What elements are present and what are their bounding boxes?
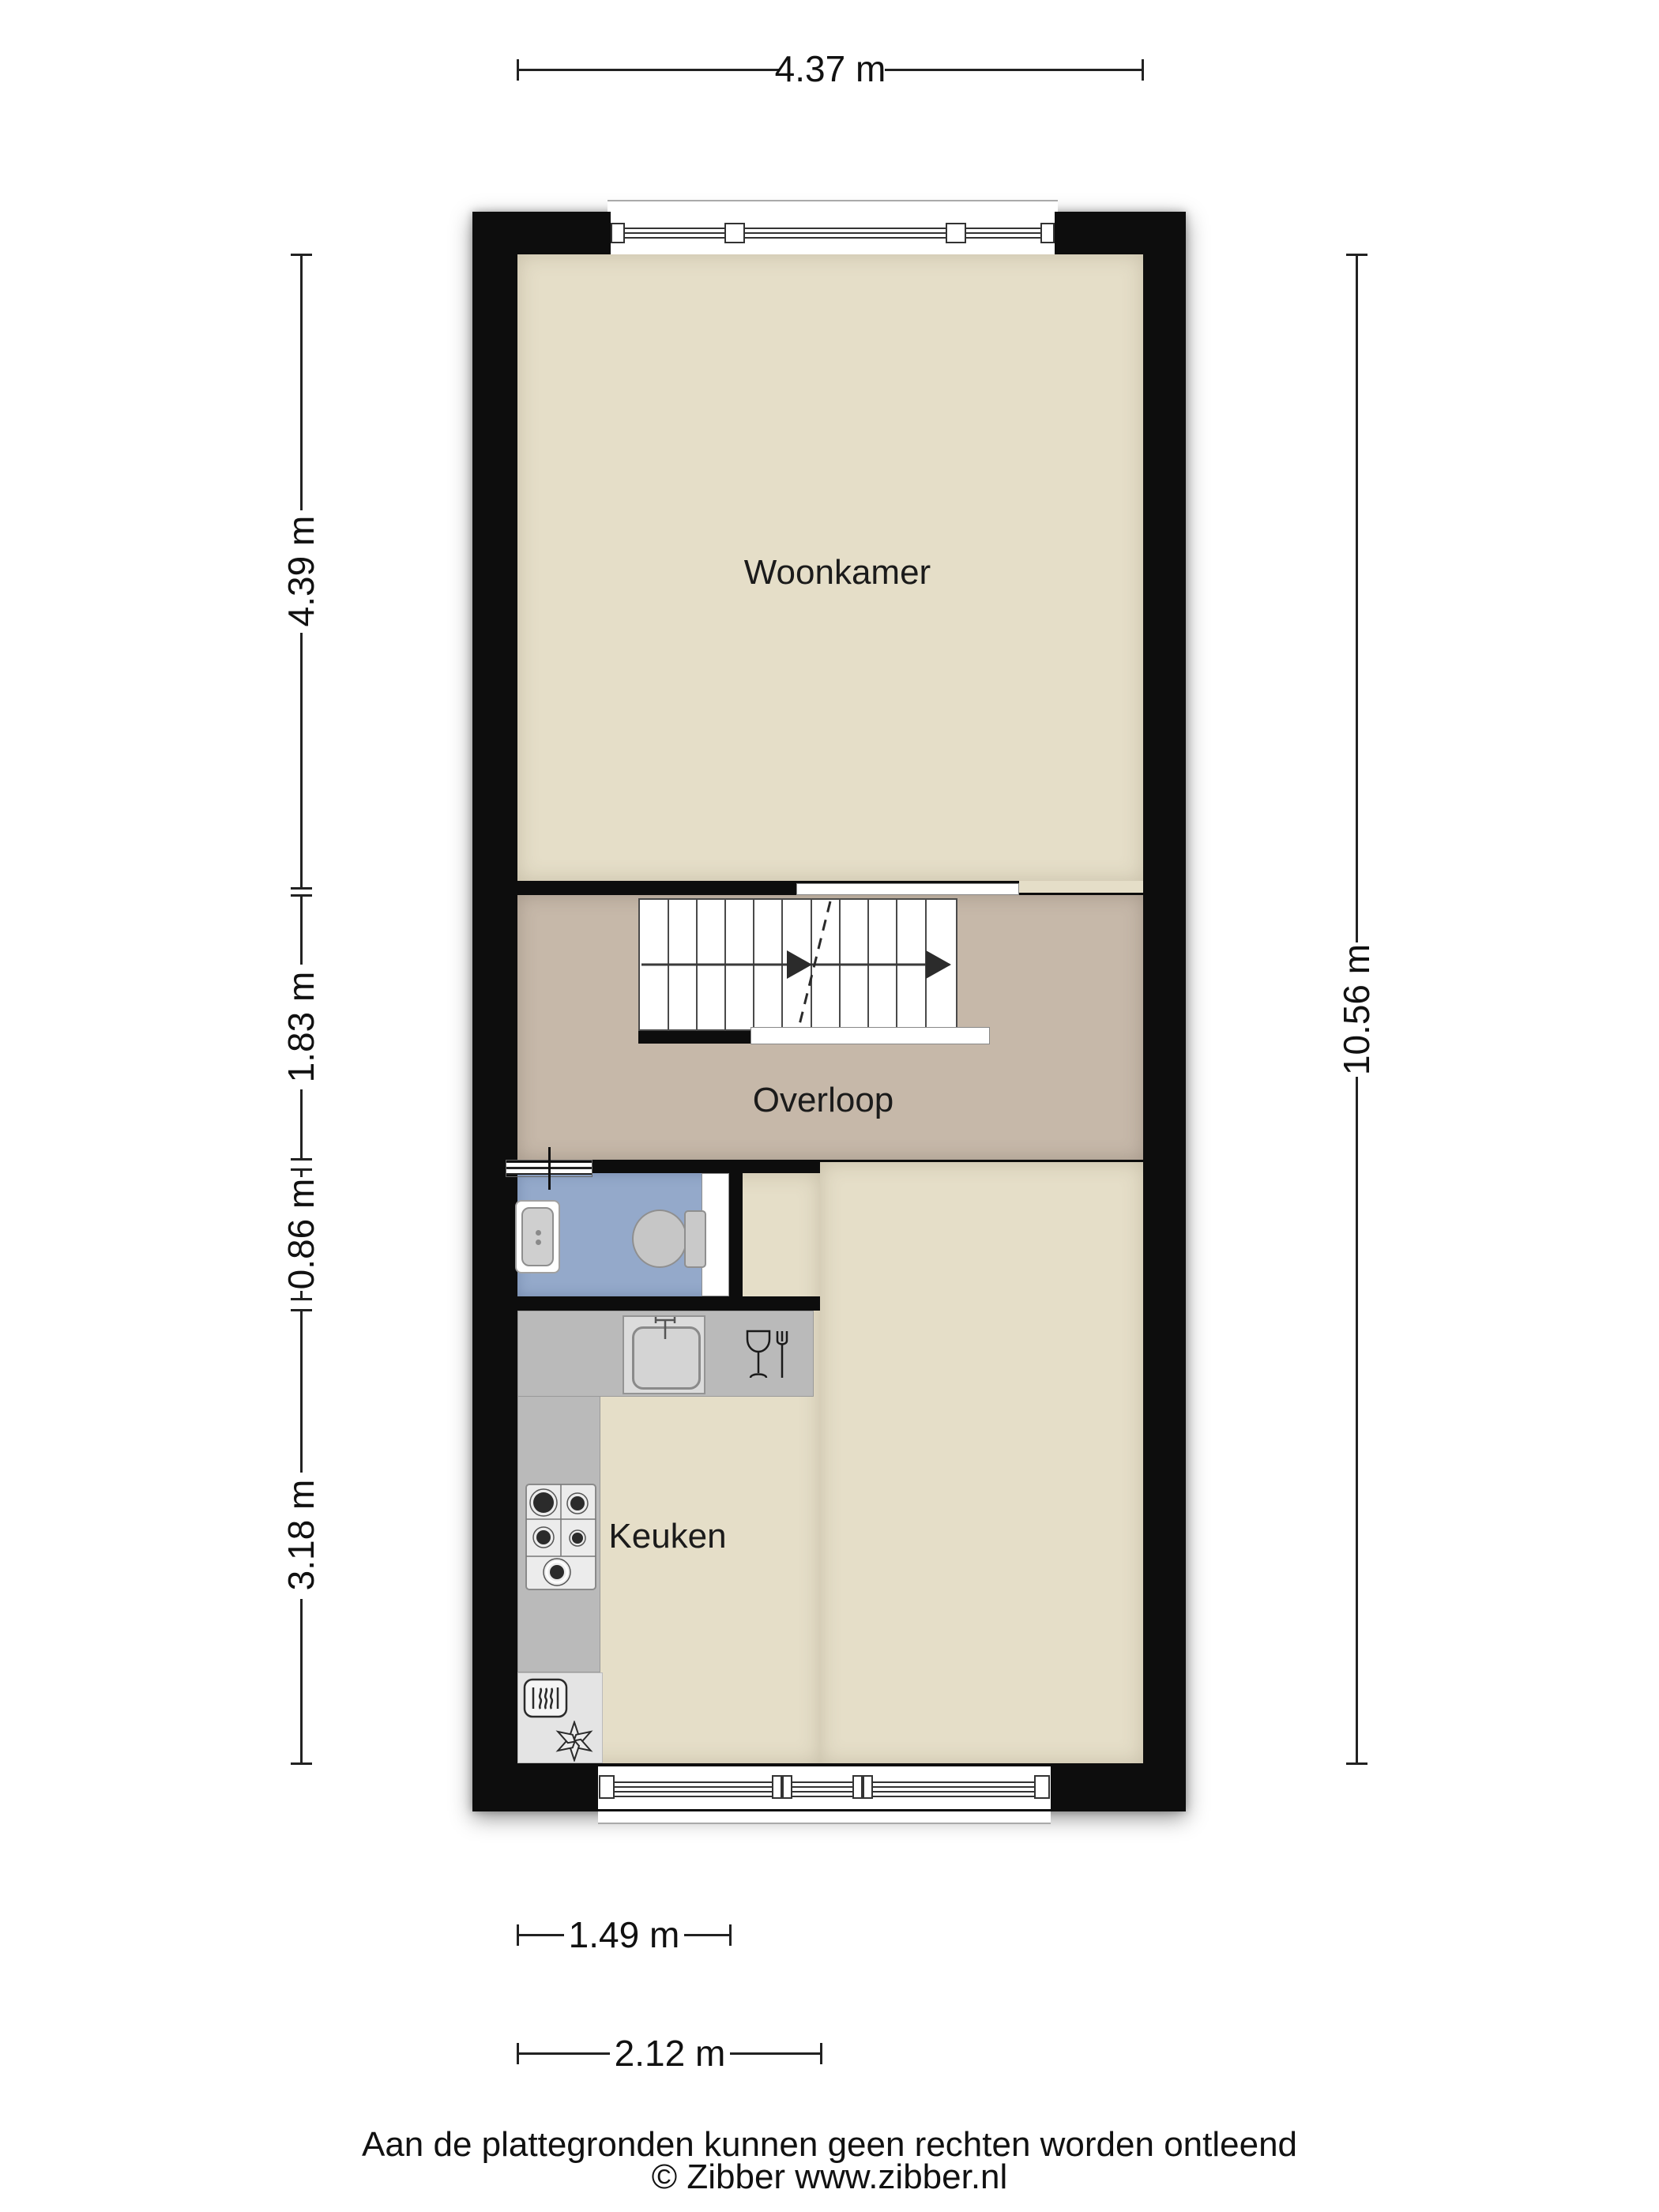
window-bottom-sill <box>598 1811 1051 1824</box>
dimension-left-label-2: 1.83 m <box>282 932 320 1122</box>
window-top-icon <box>611 212 1055 254</box>
oven-icon <box>523 1678 568 1718</box>
hand-basin-icon <box>515 1200 560 1273</box>
stair-direction-arrow <box>926 950 951 979</box>
dimension-line <box>1356 1077 1358 1764</box>
dimension-tick <box>291 887 312 890</box>
dimension-tick <box>729 1924 732 1946</box>
room-label-woonkamer: Woonkamer <box>679 553 995 592</box>
dimension-tick <box>291 894 312 897</box>
stair-direction-arrow <box>787 950 812 979</box>
stair-railing <box>750 1027 990 1044</box>
fan-icon <box>554 1721 595 1762</box>
toilet-bottom-wall <box>472 1296 820 1311</box>
stair-side-wall <box>638 1031 750 1044</box>
dimension-bottom-label-1: 1.49 m <box>537 1916 711 1954</box>
staircase-icon <box>638 898 957 1031</box>
footer-copyright: © Zibber www.zibber.nl <box>0 2157 1659 2197</box>
staircase-drawing <box>640 900 956 1029</box>
window-bottom-icon <box>598 1766 1051 1809</box>
room-label-keuken: Keuken <box>510 1517 826 1556</box>
glassware-fork-icon <box>744 1329 792 1382</box>
dimension-left-label-1: 4.39 m <box>282 476 320 666</box>
window-top-sill <box>608 200 1058 212</box>
dimension-line <box>300 254 303 510</box>
dimension-left-label-3: 0.86 m <box>282 1139 320 1329</box>
dimension-tick <box>291 1762 312 1765</box>
dimension-tick <box>517 1924 519 1946</box>
dimension-tick <box>1346 254 1367 256</box>
dimension-tick <box>517 2043 519 2064</box>
dimension-line <box>1356 254 1358 942</box>
toilet-right-wall <box>729 1169 743 1311</box>
kitchen-sink-icon <box>623 1315 705 1394</box>
dimension-line <box>885 69 1143 71</box>
dimension-tick <box>517 59 519 81</box>
dimension-line <box>300 633 303 889</box>
dimension-tick <box>291 1309 312 1311</box>
dimension-tick <box>1346 1762 1367 1765</box>
floor-plan-page: 4.37 m 4.39 m 1.83 m 0.86 m 3.18 m 10.5 <box>0 0 1659 2212</box>
room-label-overloop: Overloop <box>665 1081 981 1120</box>
room-keuken-floor-right <box>820 1162 1143 1763</box>
dimension-left-label-4: 3.18 m <box>282 1440 320 1630</box>
dimension-tick <box>1142 59 1144 81</box>
dimension-right-label: 10.56 m <box>1337 899 1375 1120</box>
floor-plan: Woonkamer Overloop Keuken <box>472 212 1186 1811</box>
dimension-tick <box>820 2043 822 2064</box>
room-woonkamer-floor-extension <box>1019 881 1143 893</box>
door-post-line <box>548 1147 551 1190</box>
woonkamer-overloop-wall <box>517 881 796 895</box>
stair-opening-lintel <box>796 883 1019 895</box>
dimension-line <box>517 69 779 71</box>
dimension-bottom-label-2: 2.12 m <box>583 2034 757 2072</box>
dimension-top-label: 4.37 m <box>743 50 917 88</box>
dimension-tick <box>291 254 312 256</box>
